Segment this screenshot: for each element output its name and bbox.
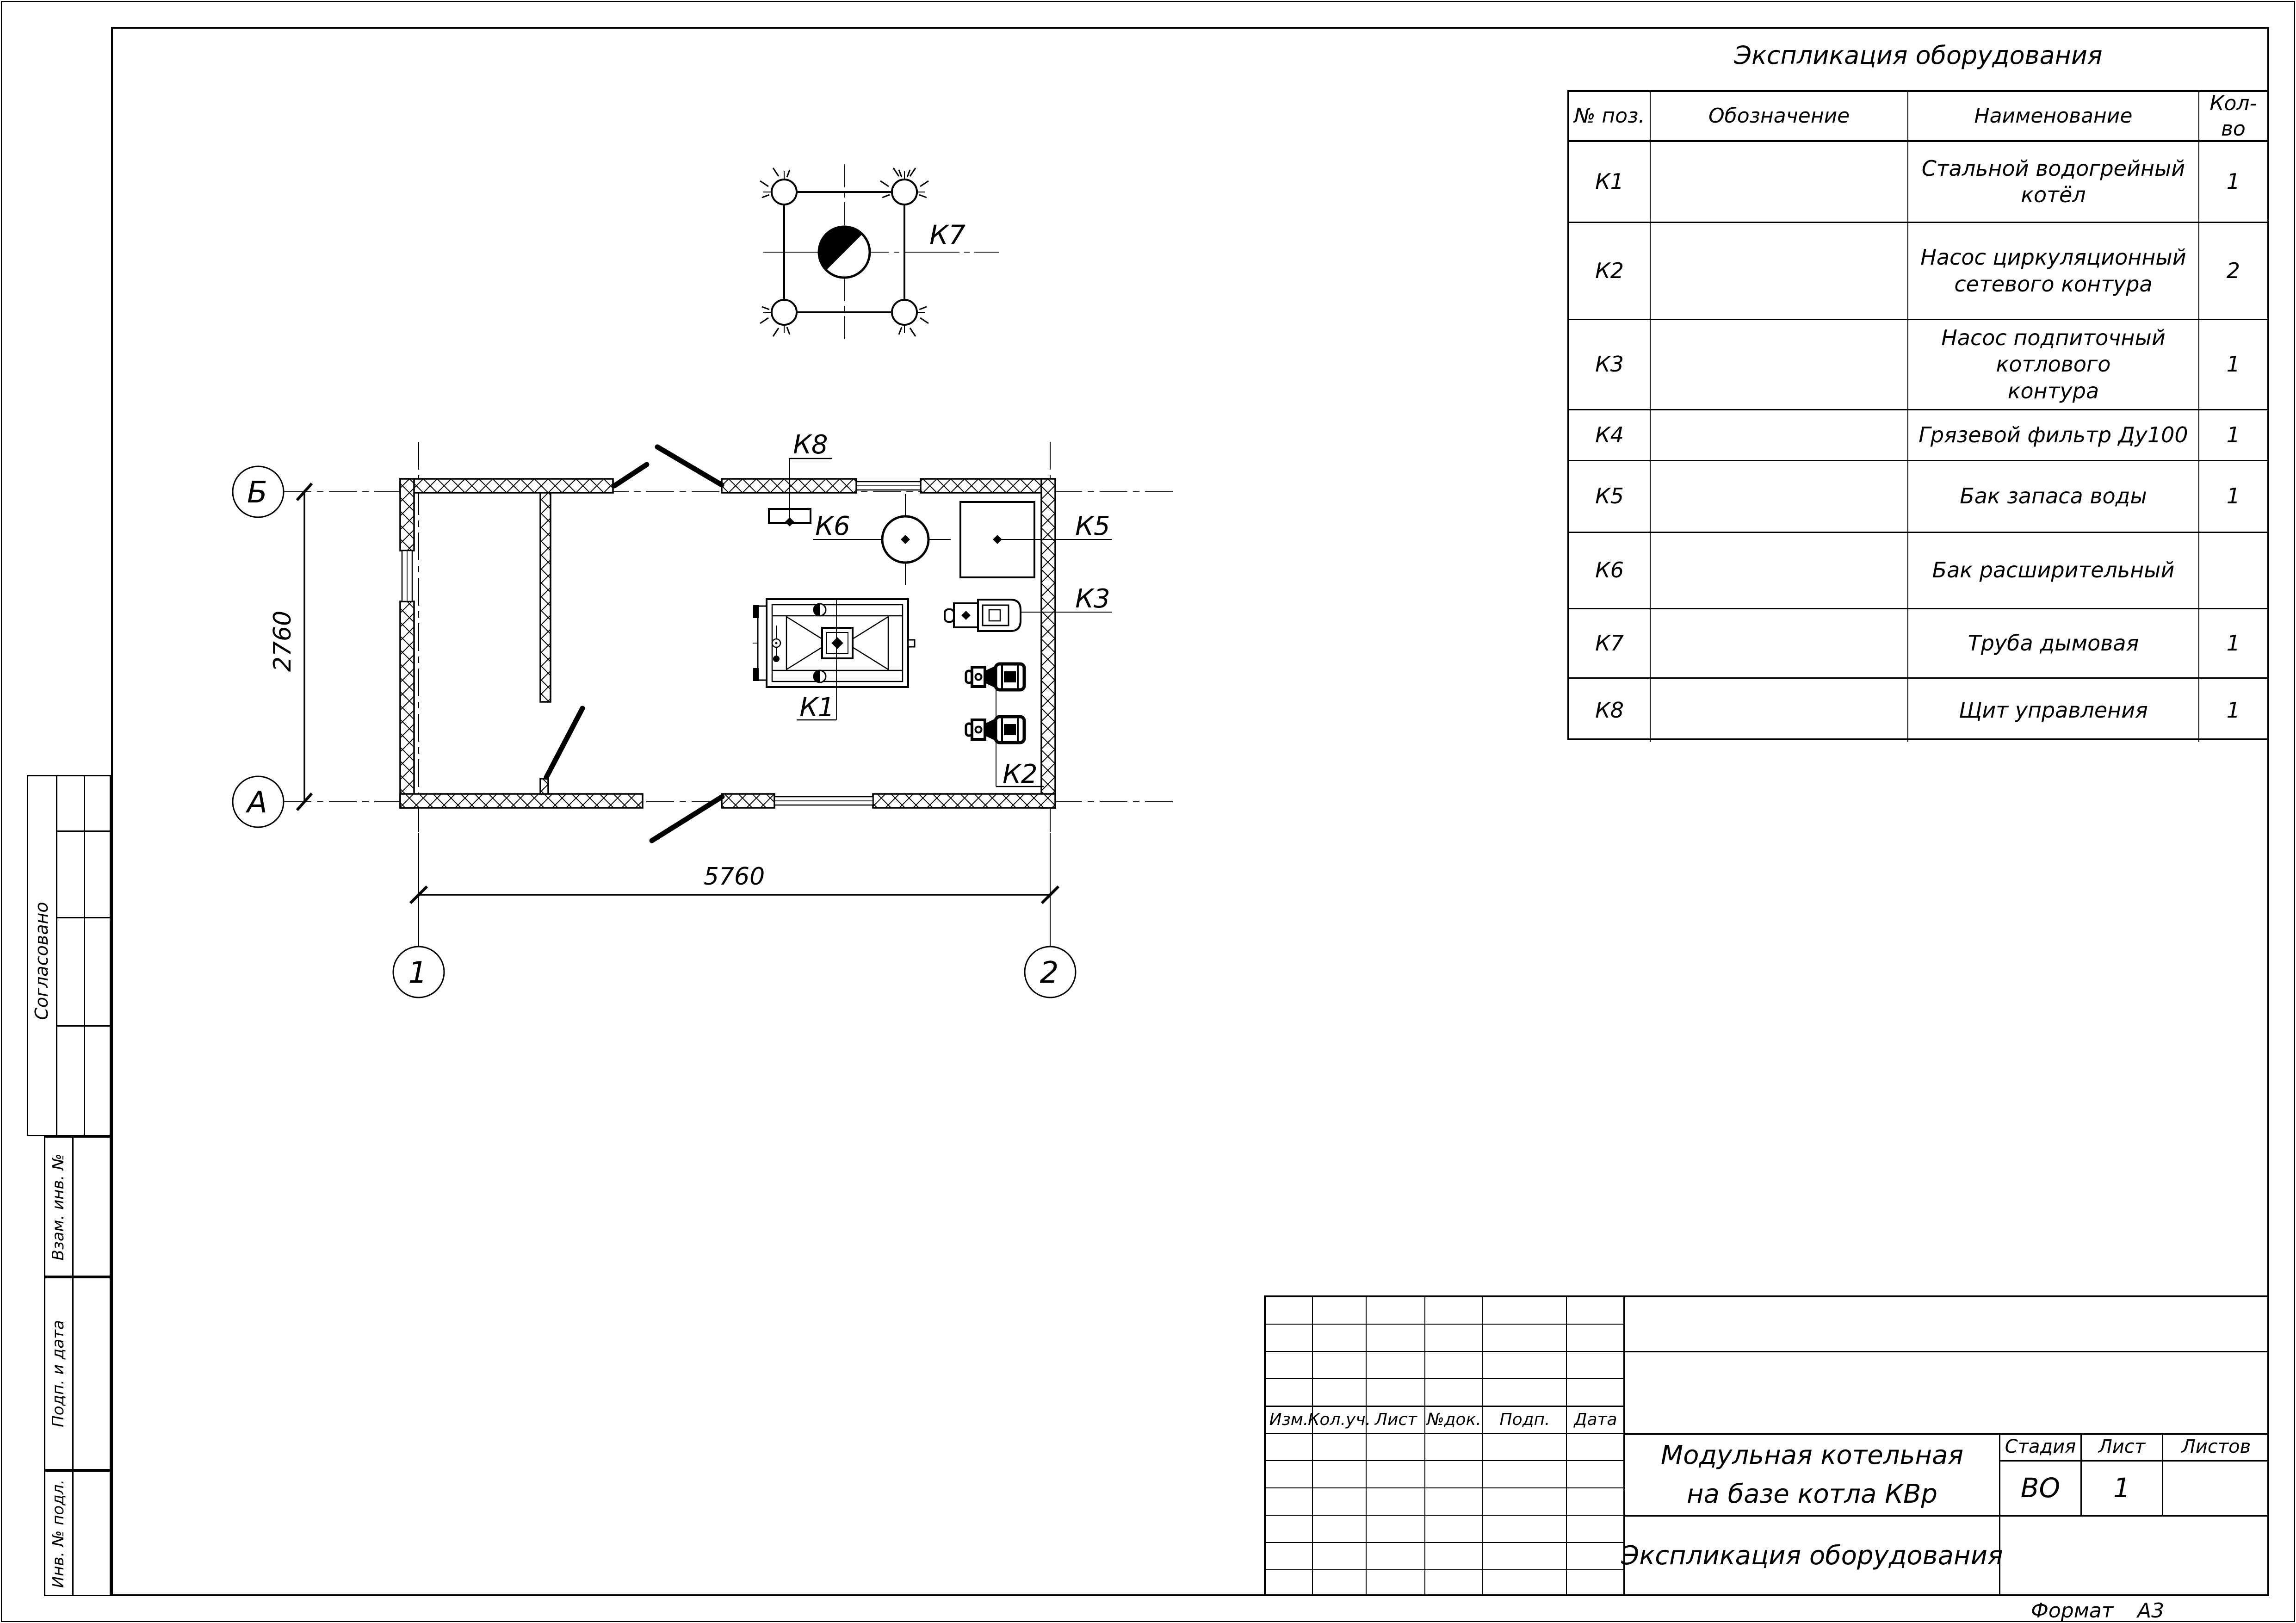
label-k2: К2	[1003, 759, 1037, 789]
label-k3: К3	[1075, 584, 1110, 614]
row-name: Насос подпиточный котлового контура	[1908, 320, 2199, 409]
title-block: Изм. Кол.уч. Лист №док. Подп. Дата Модул…	[1264, 1295, 2269, 1596]
row-name: Щит управления	[1908, 679, 2199, 742]
tb-col-data: Дата	[1567, 1406, 1624, 1433]
table-row: К6Бак расширительный	[1569, 532, 2267, 608]
row-designation	[1651, 461, 1908, 532]
chimney-detail	[760, 164, 999, 340]
format-label: Формат	[2031, 1599, 2114, 1623]
column-header: Обозначение	[1651, 92, 1908, 140]
label-k6: К6	[815, 511, 850, 541]
dimension-lines	[304, 492, 1050, 895]
column-header: Кол-во	[2199, 92, 2267, 140]
format-value: А3	[2137, 1599, 2164, 1623]
tb-stage-label: Стадия	[2000, 1433, 2080, 1460]
row-pos: К7	[1569, 609, 1651, 677]
row-name: Стальной водогрейный котёл	[1908, 142, 2199, 222]
stamp-inv-orig-label: Инв. № подл.	[45, 1478, 71, 1589]
stamp-replace-inv-label: Взам. инв. №	[45, 1152, 71, 1263]
tb-sheet-title: Экспликация оборудования	[1625, 1517, 1999, 1594]
row-qty: 1	[2199, 461, 2267, 532]
label-k7: К7	[929, 219, 965, 251]
table-row: К4Грязевой фильтр Ду1001	[1569, 409, 2267, 460]
row-designation	[1651, 410, 1908, 460]
axis-label-2: 2	[1040, 956, 1059, 990]
column-header: Наименование	[1908, 92, 2199, 140]
row-pos: К1	[1569, 142, 1651, 222]
row-qty: 1	[2199, 142, 2267, 222]
table-row: К3Насос подпиточный котлового контура1	[1569, 319, 2267, 409]
row-designation	[1651, 320, 1908, 409]
stamp-sign-date-label: Подп. и дата	[45, 1304, 71, 1443]
equipment-table: № поз.ОбозначениеНаименованиеКол-воК1Ста…	[1567, 90, 2269, 740]
row-qty: 2	[2199, 223, 2267, 319]
dim-width-text: 5760	[704, 863, 765, 891]
row-qty: 1	[2199, 609, 2267, 677]
axis-label-1: 1	[408, 956, 427, 990]
row-name: Труба дымовая	[1908, 609, 2199, 677]
tb-project-name: Модульная котельная на базе котла КВр	[1625, 1435, 1999, 1515]
stamp-inv-orig: Инв. № подл.	[44, 1470, 111, 1596]
tb-sheets-label: Листов	[2163, 1433, 2269, 1460]
column-header: № поз.	[1569, 92, 1651, 140]
table-row: К1Стальной водогрейный котёл1	[1569, 141, 2267, 222]
row-designation	[1651, 609, 1908, 677]
table-row: К7Труба дымовая1	[1569, 608, 2267, 677]
row-qty: 1	[2199, 320, 2267, 409]
row-designation	[1651, 223, 1908, 319]
axis-label-b: Б	[247, 476, 267, 510]
row-designation	[1651, 533, 1908, 608]
row-pos: К2	[1569, 223, 1651, 319]
row-name: Бак запаса воды	[1908, 461, 2199, 532]
row-designation	[1651, 679, 1908, 742]
row-name: Насос циркуляционный сетевого контура	[1908, 223, 2199, 319]
row-qty	[2199, 533, 2267, 608]
tb-sheet-value: 1	[2082, 1461, 2162, 1515]
table-row: К8Щит управления1	[1569, 677, 2267, 742]
drawing-sheet: 2760 5760 Б А 1 2	[0, 0, 2296, 1623]
equipment-table-title: Экспликация оборудования	[1567, 41, 2269, 70]
tb-sheets-value	[2163, 1461, 2269, 1515]
row-pos: К4	[1569, 410, 1651, 460]
tb-col-list: Лист	[1367, 1406, 1425, 1433]
walls	[400, 479, 1055, 808]
row-pos: К3	[1569, 320, 1651, 409]
label-k8: К8	[793, 430, 828, 460]
equipment-table-header: № поз.ОбозначениеНаименованиеКол-во	[1569, 92, 2267, 141]
row-designation	[1651, 142, 1908, 222]
table-row: К2Насос циркуляционный сетевого контура2	[1569, 222, 2267, 319]
pump-k2-lower	[966, 717, 1024, 743]
tb-col-koluch: Кол.уч.	[1312, 1406, 1367, 1433]
row-pos: К6	[1569, 533, 1651, 608]
stamp-sign-date: Подп. и дата	[44, 1277, 111, 1470]
label-k1: К1	[799, 693, 834, 723]
dim-height-text: 2760	[269, 611, 297, 672]
stamp-agreed: Согласовано	[27, 775, 111, 1136]
tb-stage-value: ВО	[2000, 1461, 2080, 1515]
row-qty: 1	[2199, 679, 2267, 742]
row-qty: 1	[2199, 410, 2267, 460]
axis-bubbles	[233, 466, 1076, 997]
door-leaves	[546, 447, 722, 841]
row-name: Бак расширительный	[1908, 533, 2199, 608]
tb-col-podp: Подп.	[1483, 1406, 1567, 1433]
row-pos: К5	[1569, 461, 1651, 532]
tb-sheet-label: Лист	[2082, 1433, 2162, 1460]
stamp-replace-inv: Взам. инв. №	[44, 1136, 111, 1277]
axis-label-a: А	[245, 786, 267, 820]
tb-col-dok: №док.	[1425, 1406, 1483, 1433]
row-pos: К8	[1569, 679, 1651, 742]
table-row: К5Бак запаса воды1	[1569, 460, 2267, 532]
label-k5: К5	[1075, 511, 1110, 541]
tb-col-izm: Изм.	[1266, 1406, 1312, 1433]
row-name: Грязевой фильтр Ду100	[1908, 410, 2199, 460]
stamp-agreed-label: Согласовано	[28, 880, 55, 1042]
